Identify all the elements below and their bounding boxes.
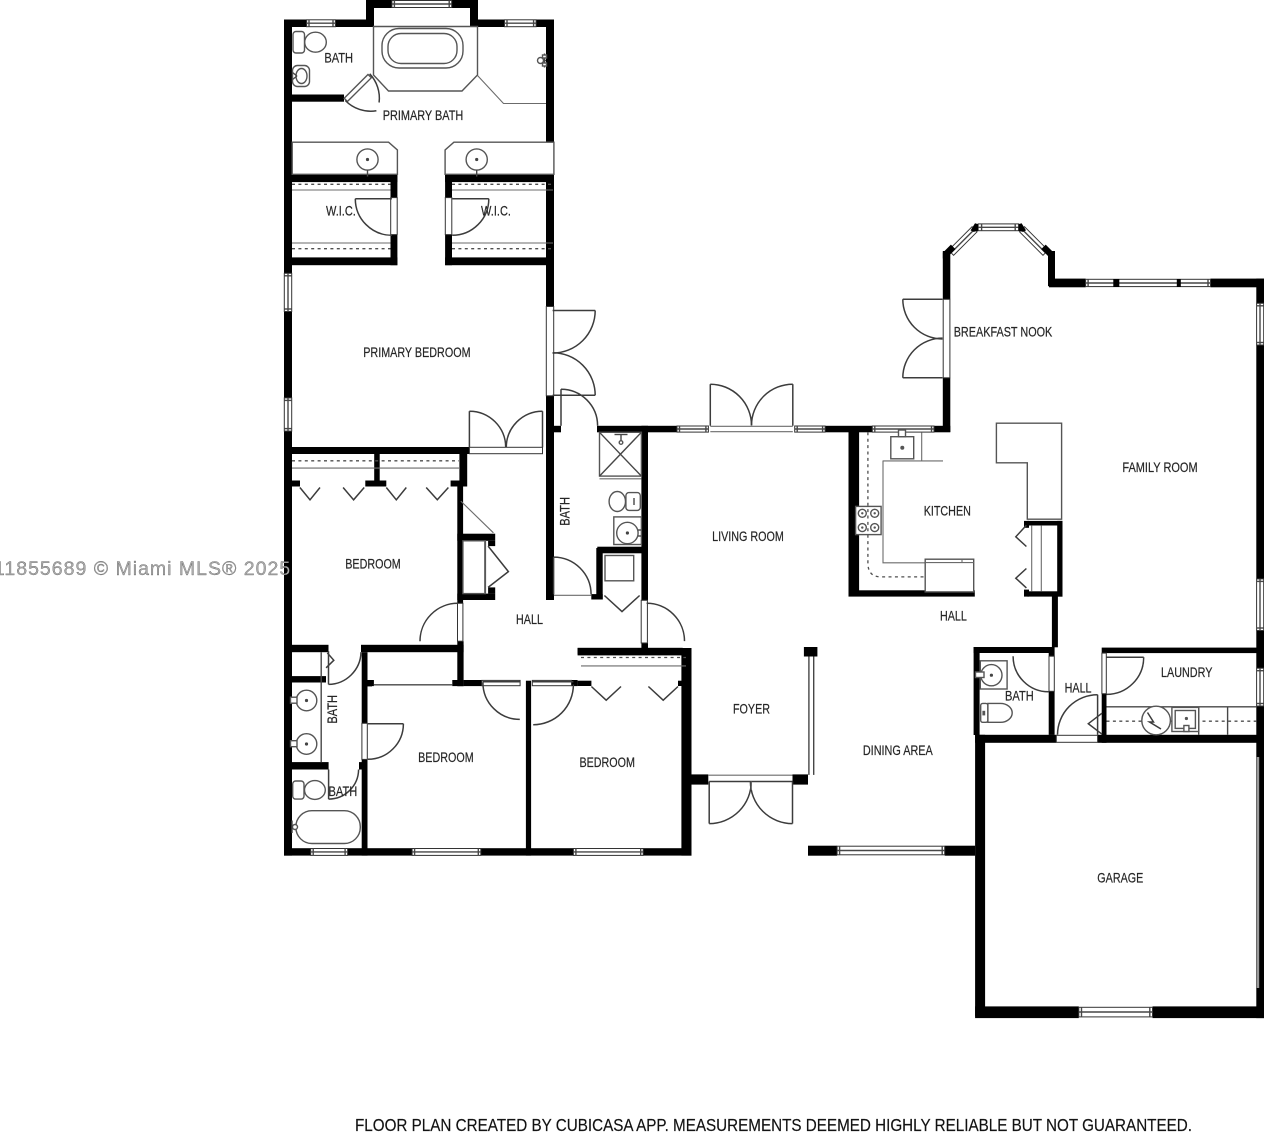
svg-text:BREAKFAST NOOK: BREAKFAST NOOK [954,324,1053,339]
svg-text:BATH: BATH [329,784,358,799]
svg-text:DINING AREA: DINING AREA [863,743,934,758]
svg-text:BATH: BATH [324,51,353,66]
svg-text:LAUNDRY: LAUNDRY [1161,665,1212,680]
svg-text:HALL: HALL [516,612,543,627]
svg-text:FOYER: FOYER [733,701,770,716]
svg-text:W.I.C.: W.I.C. [481,204,511,219]
svg-text:HALL: HALL [1065,681,1092,696]
svg-text:11855689 © Miami MLS® 2025: 11855689 © Miami MLS® 2025 [0,558,291,580]
svg-text:FLOOR PLAN CREATED BY CUBICASA: FLOOR PLAN CREATED BY CUBICASA APP. MEAS… [355,1115,1192,1135]
svg-text:BEDROOM: BEDROOM [579,755,635,770]
svg-text:PRIMARY BEDROOM: PRIMARY BEDROOM [363,345,470,360]
svg-text:BATH: BATH [558,497,573,526]
svg-text:BATH: BATH [1005,689,1034,704]
svg-text:GARAGE: GARAGE [1097,870,1143,885]
svg-text:LIVING ROOM: LIVING ROOM [712,529,784,544]
svg-text:HALL: HALL [940,608,967,623]
svg-text:BEDROOM: BEDROOM [345,557,401,572]
svg-text:W.I.C.: W.I.C. [326,204,356,219]
svg-text:BATH: BATH [325,695,340,724]
svg-text:FAMILY ROOM: FAMILY ROOM [1122,460,1197,475]
svg-text:KITCHEN: KITCHEN [924,504,971,519]
svg-text:PRIMARY BATH: PRIMARY BATH [383,108,464,123]
svg-text:BEDROOM: BEDROOM [418,750,474,765]
